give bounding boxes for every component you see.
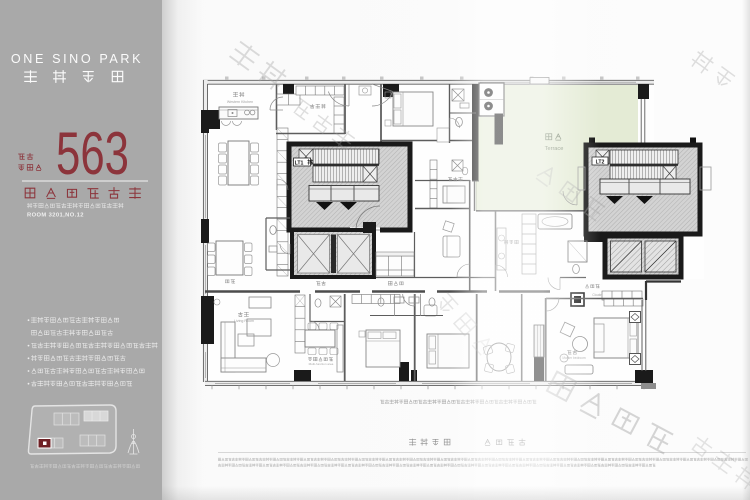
svg-text:ONE SINO PARK: ONE SINO PARK [11,52,143,66]
svg-text:ROOM 3201,NO.12: ROOM 3201,NO.12 [27,213,84,219]
svg-text:Multi-function area: Multi-function area [309,362,334,366]
svg-text:563: 563 [56,120,129,187]
svg-text:LT1: LT1 [295,160,304,166]
svg-text:Western Kitchen: Western Kitchen [227,100,253,104]
svg-text:Living Room: Living Room [234,319,254,323]
